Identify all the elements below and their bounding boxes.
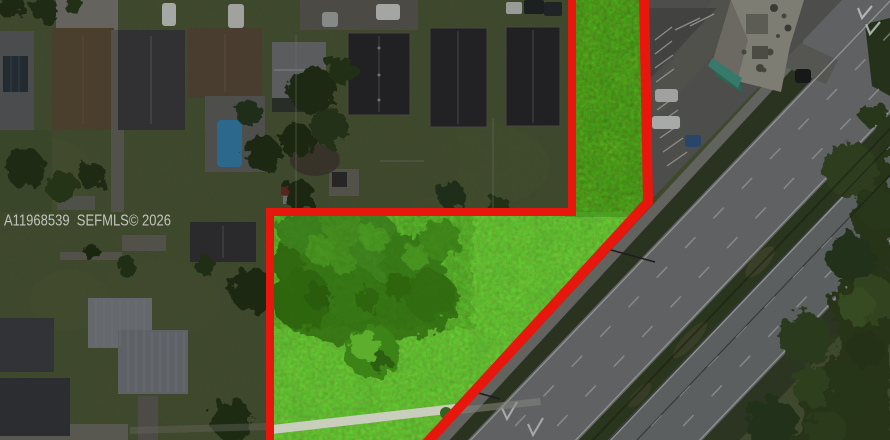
svg-text:A11968539 SEFMLS© 2026: A11968539 SEFMLS© 2026	[4, 213, 171, 230]
